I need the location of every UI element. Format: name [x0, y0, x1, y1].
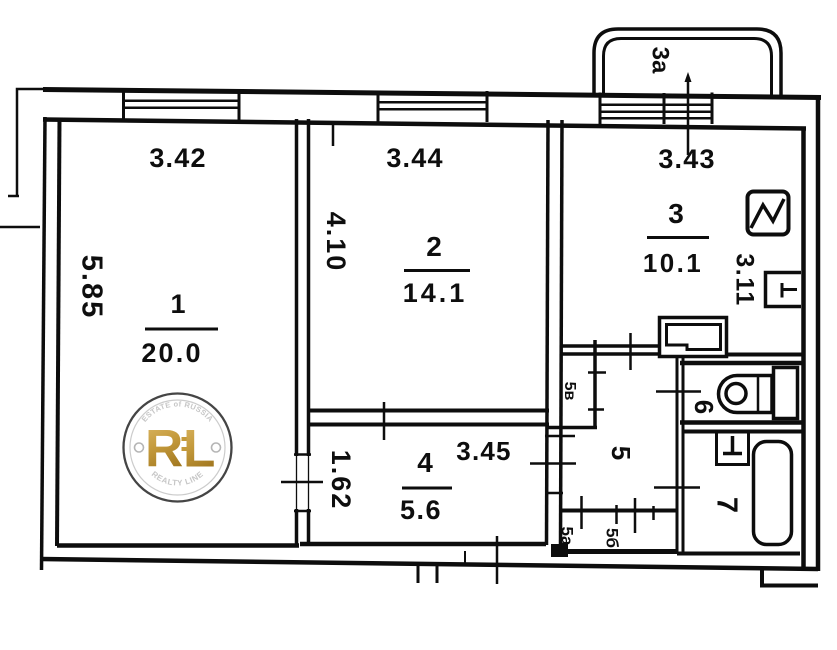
svg-text:L: L: [183, 420, 215, 479]
svg-text:5а: 5а: [558, 527, 577, 546]
svg-text:5.6: 5.6: [400, 495, 442, 525]
svg-text:6: 6: [689, 400, 719, 414]
svg-text:10.1: 10.1: [643, 248, 703, 278]
svg-text:3: 3: [668, 198, 684, 229]
svg-text:3.42: 3.42: [149, 143, 206, 173]
svg-text:R: R: [145, 420, 183, 479]
svg-text:5в: 5в: [561, 382, 578, 401]
svg-text:3.44: 3.44: [386, 143, 443, 173]
svg-text:3.11: 3.11: [730, 253, 758, 306]
svg-text:7: 7: [710, 497, 742, 513]
svg-text:14.1: 14.1: [403, 278, 468, 308]
svg-text:1: 1: [170, 289, 185, 319]
svg-text:5: 5: [606, 446, 636, 460]
svg-text:20.0: 20.0: [141, 338, 202, 368]
svg-text:5б: 5б: [603, 528, 622, 548]
svg-text:2: 2: [426, 231, 442, 262]
svg-text:5.85: 5.85: [75, 255, 107, 319]
svg-text:3а: 3а: [647, 47, 674, 74]
svg-text:4.10: 4.10: [321, 212, 351, 273]
svg-text:4: 4: [417, 447, 433, 478]
svg-text:1.62: 1.62: [326, 450, 356, 511]
svg-text:3.43: 3.43: [658, 144, 715, 174]
svg-text:3.45: 3.45: [456, 436, 511, 466]
